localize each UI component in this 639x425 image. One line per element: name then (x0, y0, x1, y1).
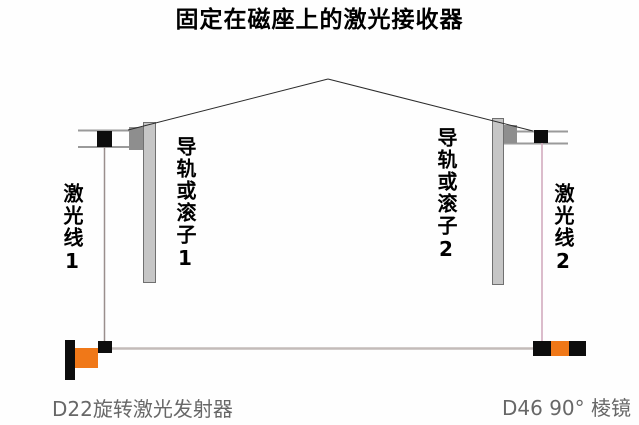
laser-alignment-diagram: 固定在磁座上的激光接收器 激光线1 导轨或滚子1 导轨或滚子2 激光线2 D22… (0, 0, 639, 425)
prism-right-cap (569, 341, 586, 356)
rail-slider-right (504, 125, 517, 143)
rail-left (143, 122, 156, 283)
pointer-line-left (128, 79, 328, 130)
label-rail-2: 导轨或滚子2 (435, 127, 457, 263)
transmitter-head (98, 341, 112, 353)
diagram-title: 固定在磁座上的激光接收器 (0, 0, 639, 34)
prism-center (551, 341, 569, 356)
laser-receiver-left (97, 131, 112, 147)
transmitter-body-upright (65, 340, 75, 380)
label-laser-line-1: 激光线1 (61, 183, 83, 275)
label-rail-1: 导轨或滚子1 (174, 136, 196, 272)
label-laser-line-2: 激光线2 (552, 183, 574, 275)
rail-right (492, 118, 504, 285)
laser-receiver-right (534, 130, 548, 143)
transmitter-orange-body (75, 348, 98, 368)
label-prism: D46 90° 棱镜 (502, 392, 631, 421)
prism-left-cap (533, 341, 551, 356)
prism-90deg (533, 341, 586, 356)
rail-slider-left (129, 127, 143, 150)
label-transmitter: D22旋转激光发射器 (52, 393, 233, 422)
